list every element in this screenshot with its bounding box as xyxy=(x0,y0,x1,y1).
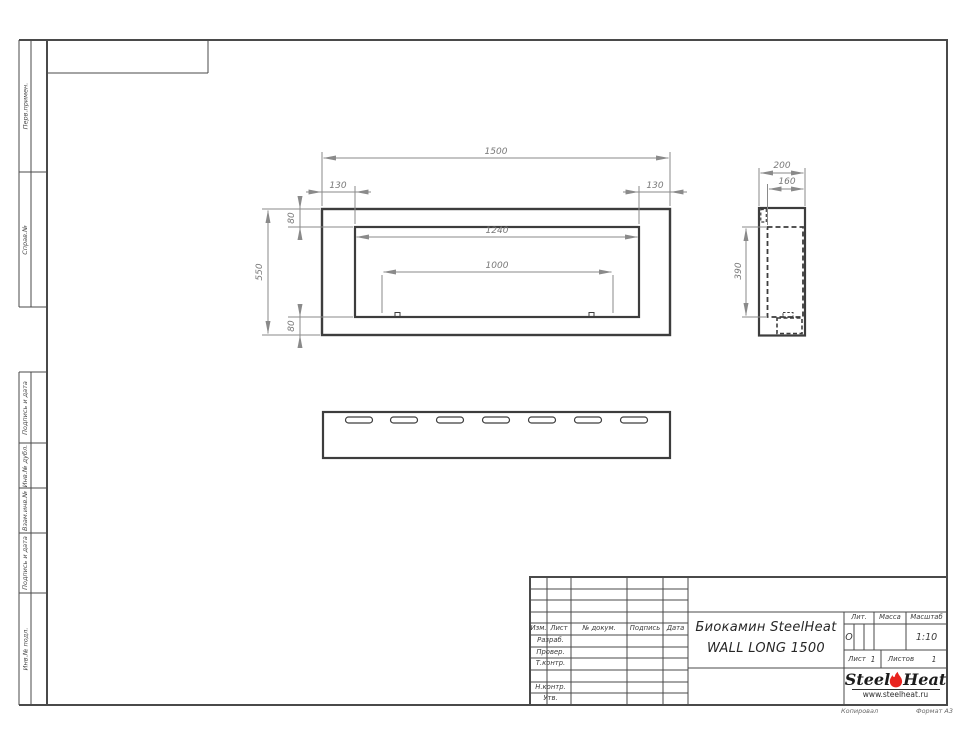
logo-word-heat: Heat xyxy=(903,670,946,689)
copied-note: Копировал xyxy=(841,707,891,715)
tb-sheets-label: Листов xyxy=(886,650,916,668)
tb-row-developed: Разраб. xyxy=(530,635,571,647)
dim-front-burner-width: 1000 xyxy=(486,261,509,271)
tb-mass-label: Масса xyxy=(874,612,906,624)
dim-front-bottom-offset: 80 xyxy=(287,320,297,332)
product-title-line2: WALL LONG 1500 xyxy=(690,638,842,659)
tb-scale-value: 1:10 xyxy=(906,624,947,650)
product-title-line1: Биокамин SteelHeat xyxy=(690,617,842,638)
burner-tab-right xyxy=(589,313,594,317)
bottom-view xyxy=(323,412,670,458)
margin-box-podpis-data-1: Подпись и дата xyxy=(19,372,31,443)
logo-word-steel: Steel xyxy=(845,670,890,689)
dim-front-left-offset: 130 xyxy=(329,181,346,191)
margin-label: Инв.№ дубл. xyxy=(21,444,29,486)
hidden-top-bracket xyxy=(761,210,767,223)
burner-tab-left xyxy=(395,313,400,317)
margin-label: Справ.№ xyxy=(21,225,29,255)
tb-sheets-value: 1 xyxy=(926,650,942,668)
margin-label: Взам.инв.№ xyxy=(21,491,29,531)
tb-sheet-value: 1 xyxy=(866,650,880,668)
hidden-inner-body xyxy=(768,227,804,317)
dim-front-top-offset: 80 xyxy=(287,212,297,224)
tb-row-checked: Провер. xyxy=(530,647,571,658)
dim-front-width: 1500 xyxy=(485,147,508,157)
tb-row-tcontrol: Т.контр. xyxy=(530,658,571,670)
margin-box-perv-primen: Перв.примен. xyxy=(19,40,31,172)
tb-sheet-label: Лист xyxy=(846,650,868,668)
drawing-sheet: 1500 130 130 1240 1000 550 80 80 200 160 xyxy=(0,0,970,749)
dim-side-inner-height: 390 xyxy=(734,262,744,279)
vent-slots xyxy=(346,417,648,423)
product-title: Биокамин SteelHeat WALL LONG 1500 xyxy=(690,617,842,659)
tb-col-izm: Изм. xyxy=(530,623,547,635)
front-view-dimensions xyxy=(262,152,687,344)
margin-box-vzam-inv: Взам.инв.№ xyxy=(19,488,31,533)
margin-label: Инв.№ подл. xyxy=(21,628,29,671)
tb-col-list: Лист xyxy=(547,623,571,635)
margin-box-sprav-no: Справ.№ xyxy=(19,172,31,307)
side-view-dim-text: 200 160 390 xyxy=(734,161,796,280)
margin-label: Подпись и дата xyxy=(21,536,29,590)
margin-label: Подпись и дата xyxy=(21,381,29,435)
dim-front-right-offset: 130 xyxy=(646,181,663,191)
steelheat-logo: Steel Heat xyxy=(844,670,947,689)
tb-lit-value: О xyxy=(844,624,854,650)
tb-scale-label: Масштаб xyxy=(906,612,947,624)
front-view-dim-text: 1500 130 130 1240 1000 550 80 80 xyxy=(255,147,664,332)
margin-box-podpis-data-2: Подпись и дата xyxy=(19,533,31,593)
dim-front-opening-width: 1240 xyxy=(486,226,509,236)
margin-label: Перв.примен. xyxy=(21,83,29,130)
tb-row-approved: Утв. xyxy=(530,693,571,705)
tb-lit-label: Лит. xyxy=(844,612,874,624)
margin-box-inv-dubl: Инв.№ дубл. xyxy=(19,443,31,488)
tb-col-sign: Подпись xyxy=(627,623,663,635)
margin-box-inv-podl: Инв.№ подл. xyxy=(19,593,31,705)
flame-icon xyxy=(889,671,904,689)
dim-side-inner-depth: 160 xyxy=(778,177,795,187)
logo-url: www.steelheat.ru xyxy=(844,690,947,699)
tb-row-ncontrol: Н.контр. xyxy=(530,682,571,693)
format-note: Формат А3 xyxy=(908,707,953,715)
hidden-bottom-box xyxy=(777,318,802,334)
logo-cell: Steel Heat www.steelheat.ru xyxy=(844,668,947,705)
tb-col-doc: № докум. xyxy=(571,623,627,635)
dim-side-depth: 200 xyxy=(773,161,790,171)
dim-front-height: 550 xyxy=(255,263,265,280)
tb-col-date: Дата xyxy=(663,623,688,635)
side-view-dimensions xyxy=(742,168,805,317)
sheet-frame xyxy=(19,40,947,705)
